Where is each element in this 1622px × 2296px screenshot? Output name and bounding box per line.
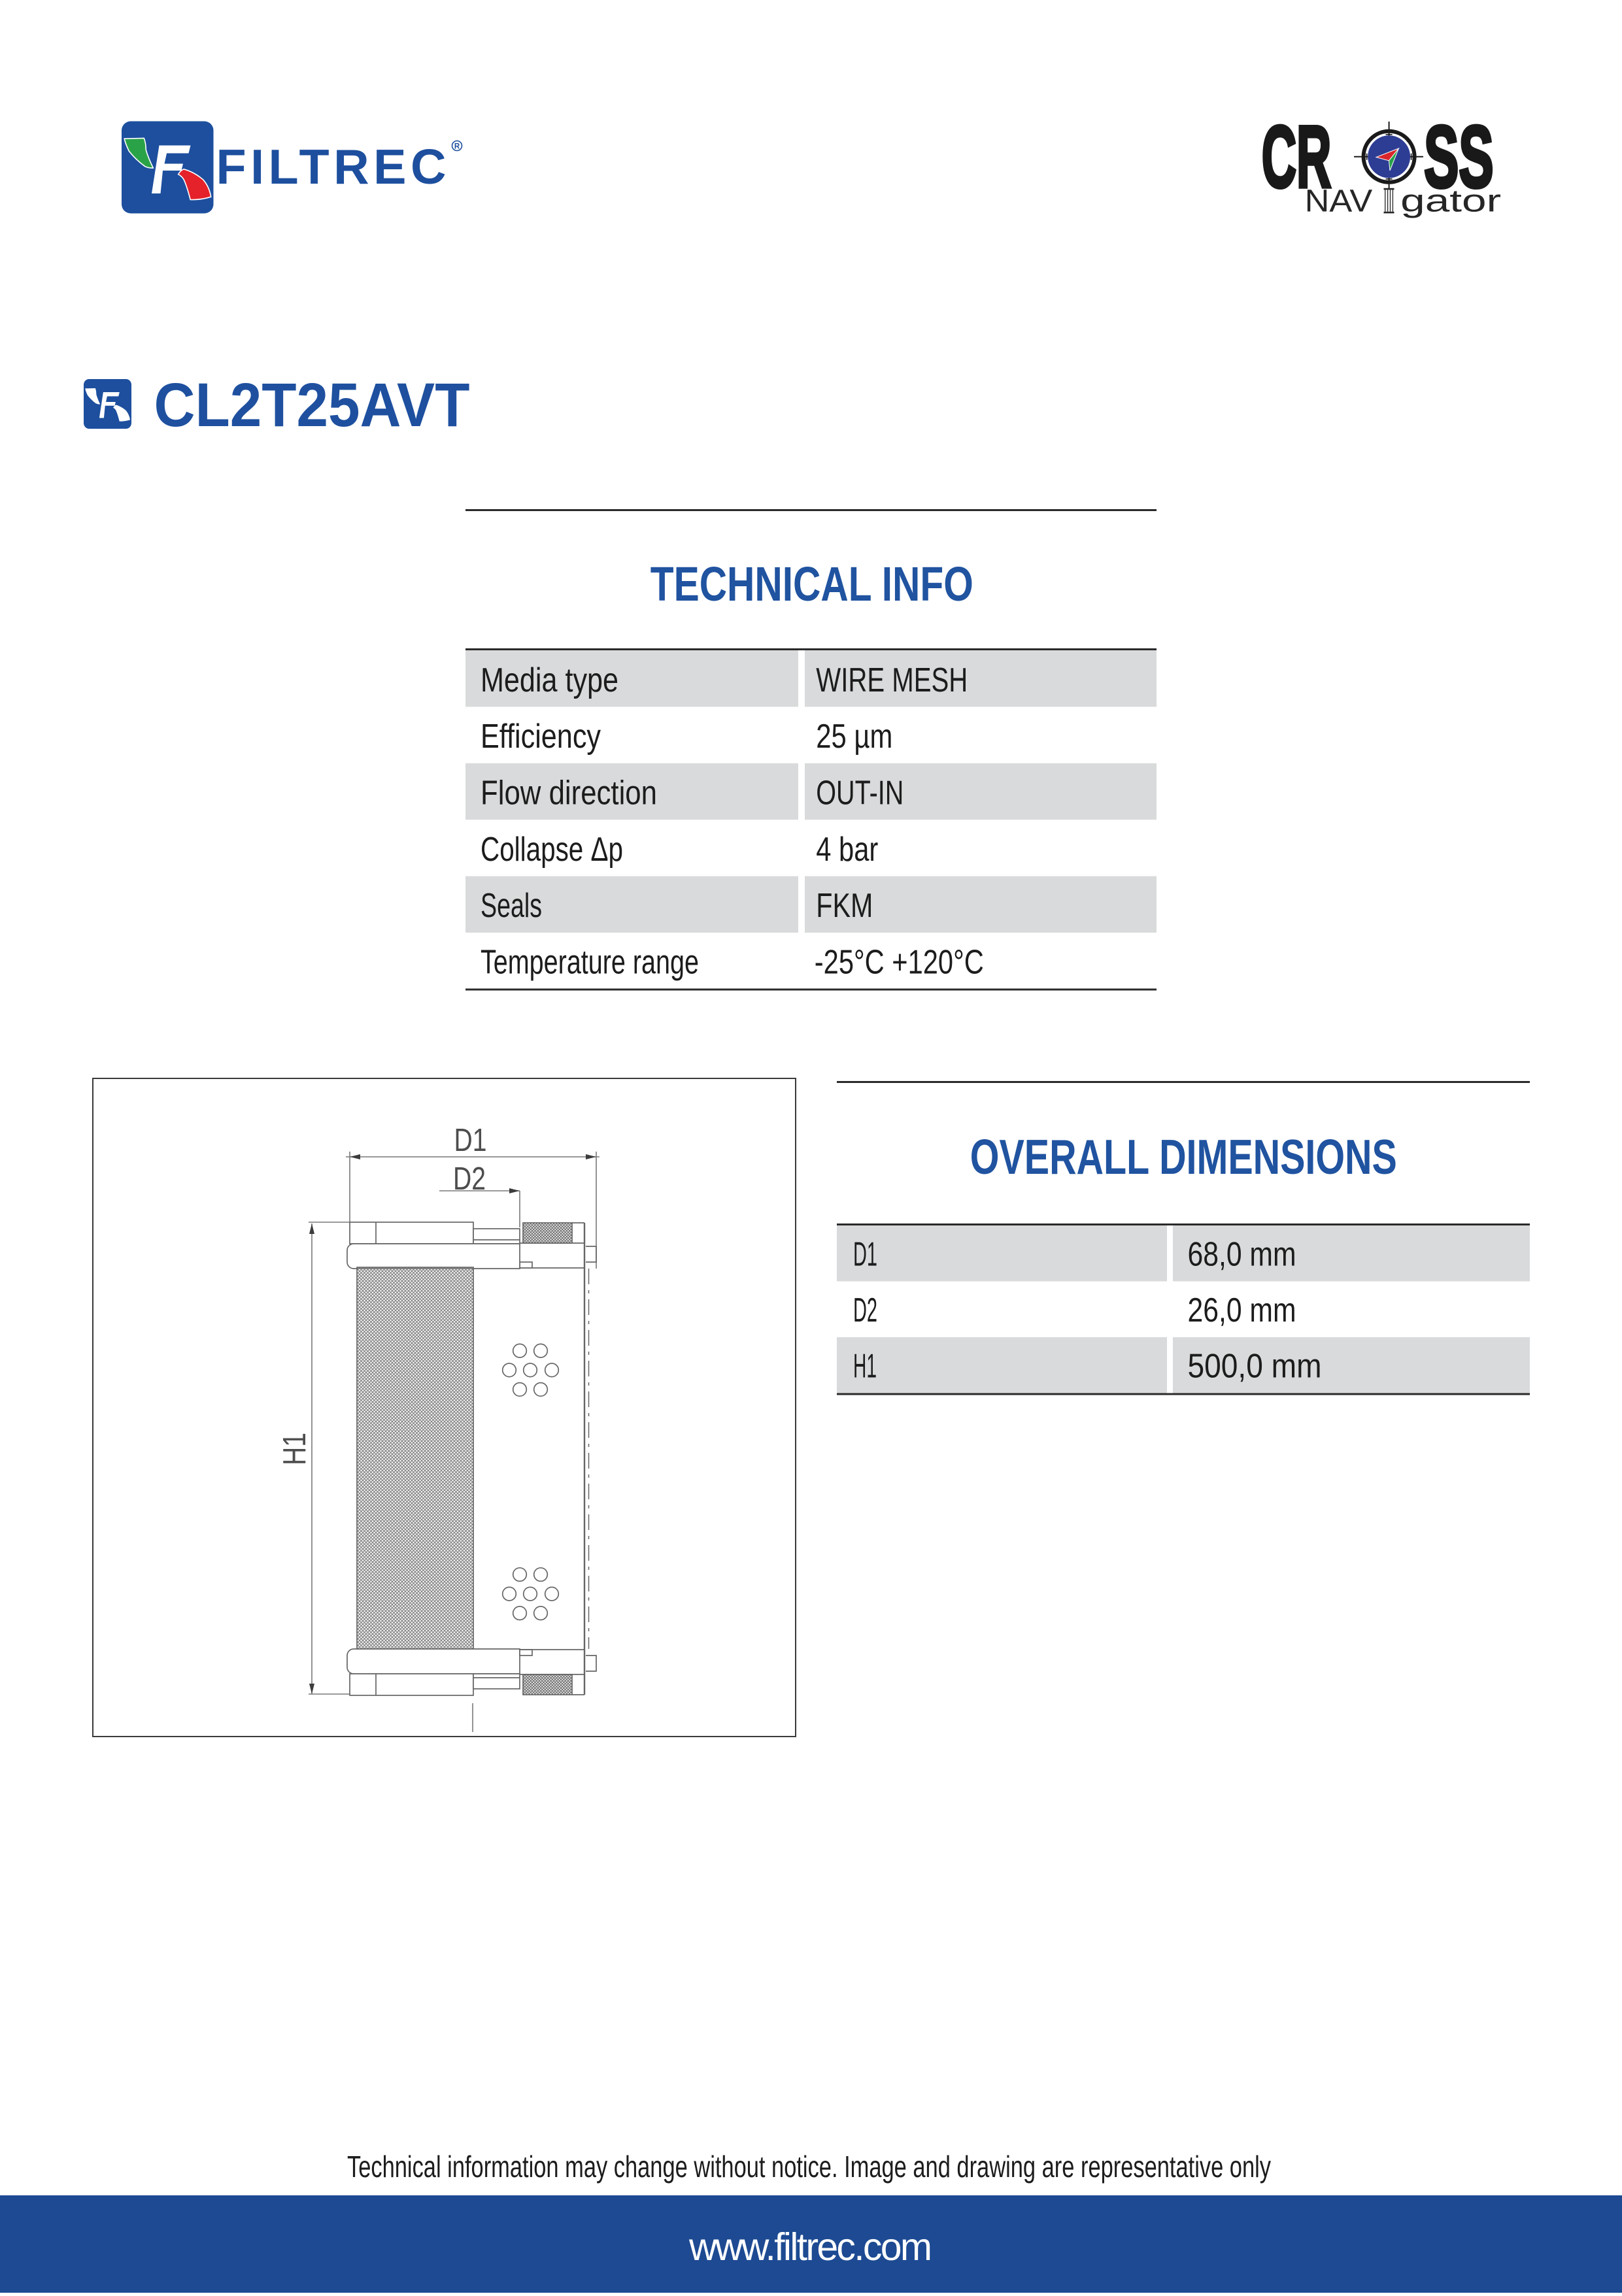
svg-text:Seals: Seals xyxy=(481,887,542,925)
svg-text:WIRE MESH: WIRE MESH xyxy=(816,661,968,699)
svg-text:68,0 mm: 68,0 mm xyxy=(1188,1236,1296,1274)
svg-text:500,0 mm: 500,0 mm xyxy=(1188,1348,1322,1386)
svg-text:25 µm: 25 µm xyxy=(816,718,892,756)
svg-text:26,0 mm: 26,0 mm xyxy=(1188,1291,1296,1329)
svg-text:Collapse Δp: Collapse Δp xyxy=(481,831,623,869)
svg-text:H1: H1 xyxy=(853,1348,877,1386)
svg-text:Efficiency: Efficiency xyxy=(481,718,601,756)
svg-text:Technical information may chan: Technical information may change without… xyxy=(347,2150,1271,2184)
svg-text:Flow direction: Flow direction xyxy=(481,774,657,812)
svg-text:Media type: Media type xyxy=(481,661,618,699)
svg-text:H1: H1 xyxy=(277,1433,313,1465)
svg-text:D2: D2 xyxy=(853,1291,877,1329)
svg-text:www.filtrec.com: www.filtrec.com xyxy=(688,2225,932,2269)
svg-text:FKM: FKM xyxy=(816,887,873,925)
svg-text:TECHNICAL INFO: TECHNICAL INFO xyxy=(650,557,973,611)
svg-text:gator: gator xyxy=(1400,184,1501,219)
svg-text:D1: D1 xyxy=(454,1122,487,1158)
svg-text:Temperature range: Temperature range xyxy=(481,944,699,982)
svg-text:D1: D1 xyxy=(853,1236,877,1274)
svg-text:OUT-IN: OUT-IN xyxy=(816,774,904,812)
svg-text:OVERALL DIMENSIONS: OVERALL DIMENSIONS xyxy=(970,1129,1397,1184)
svg-text:-25°C +120°C: -25°C +120°C xyxy=(815,944,984,982)
svg-text:R: R xyxy=(454,143,460,151)
svg-text:4 bar: 4 bar xyxy=(816,831,878,869)
svg-text:NAV: NAV xyxy=(1305,184,1373,219)
svg-text:CL2T25AVT: CL2T25AVT xyxy=(154,371,470,440)
